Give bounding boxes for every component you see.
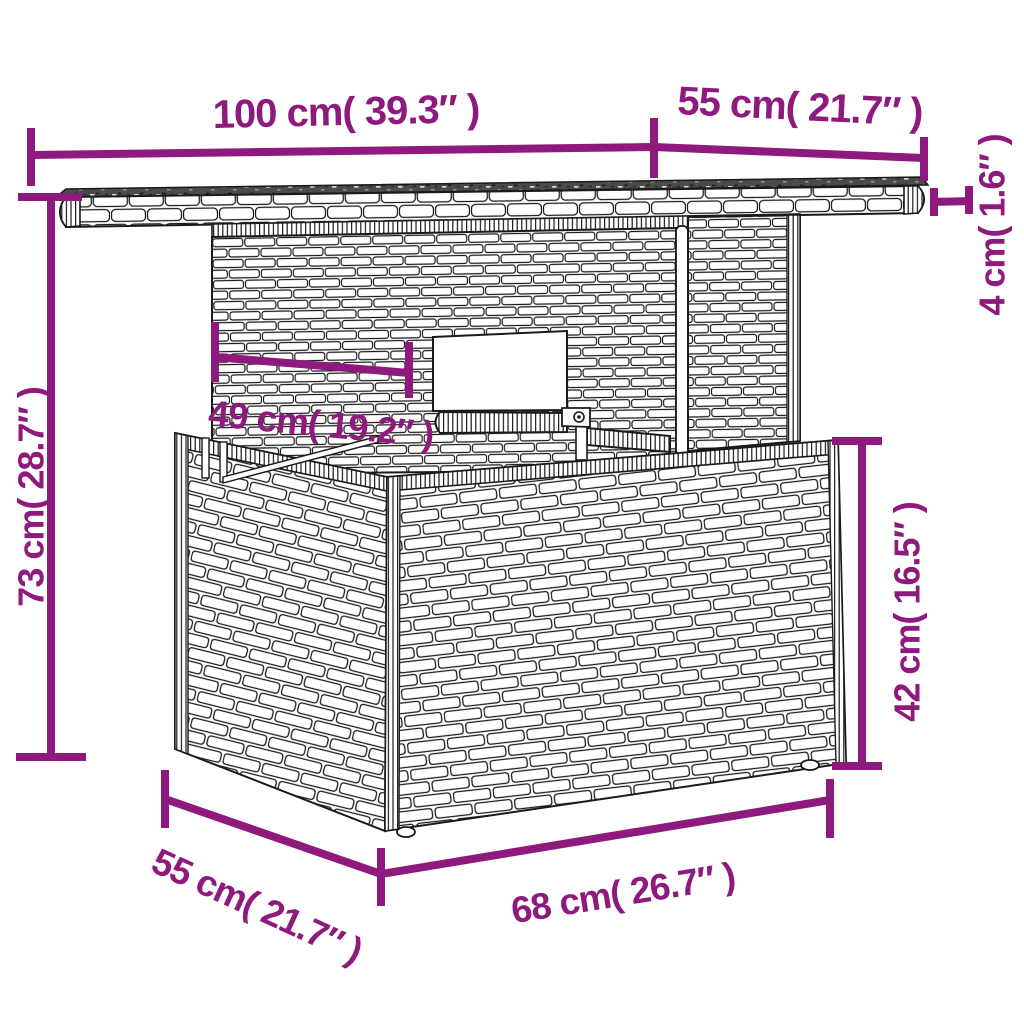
pedestal-leg-pole-1 [202, 438, 209, 478]
pedestal-side-rounded-edge [787, 215, 800, 442]
product-dimension-diagram: 100 cm( 39.3″ ) 55 cm( 21.7″ ) 4 cm( 1.6… [0, 0, 1024, 1024]
pedestal-side-face [688, 215, 800, 451]
tabletop-left-endcap [60, 197, 80, 227]
dim-label-top-length: 100 cm( 39.3″ ) [212, 87, 479, 137]
dim-label-thickness: 4 cm( 1.6″ ) [972, 134, 1013, 315]
pedestal-window-opening [433, 331, 567, 411]
dim-label-top-depth: 55 cm( 21.7″ ) [676, 79, 923, 135]
base-back-rim-tube [436, 412, 568, 433]
dimension-diagram-canvas: 100 cm( 39.3″ ) 55 cm( 21.7″ ) 4 cm( 1.6… [0, 0, 1024, 1024]
base-front-face [385, 440, 846, 831]
dim-label-overall-height: 73 cm( 28.7″ ) [11, 387, 52, 606]
dim-label-base-height: 42 cm( 16.5″ ) [887, 502, 928, 721]
dim-label-base-length: 68 cm( 26.7″ ) [508, 855, 738, 932]
dim-thickness-bracket [930, 186, 973, 216]
base-foot-left [397, 827, 415, 837]
dim-top-depth-line [654, 137, 924, 181]
base-left-face [175, 433, 387, 831]
tabletop-right-endcap [904, 186, 924, 214]
base-left-rounded-edge [175, 433, 188, 754]
pedestal-corner-pole [676, 226, 688, 455]
table-illustration [56, 177, 928, 837]
hinge-pole [576, 424, 587, 460]
base [175, 433, 846, 837]
base-foot-right [801, 760, 819, 770]
base-front-left-corner [385, 476, 400, 831]
hinge-screw-center [577, 415, 581, 419]
